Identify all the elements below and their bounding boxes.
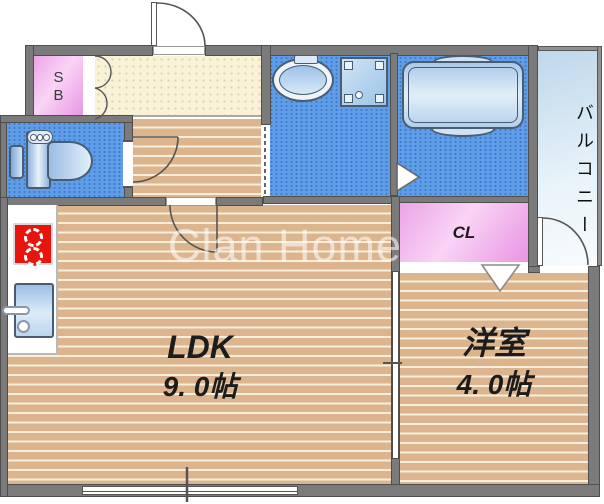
ldk-area: 9. 0帖 [95,367,305,407]
ldk-label: LDK 9. 0帖 [95,327,305,407]
western-room-name: 洋室 [402,322,586,364]
western-room-label: 洋室 4. 0帖 [402,322,586,406]
bathroom-door-icon [397,163,419,191]
floor-plan: SB バルコニー CL LDK 9. 0帖 洋室 4. 0帖 Clan Home [0,0,604,504]
shoe-box-label: SB [34,56,83,117]
closet-folding-door-icon [482,265,519,291]
ldk-name: LDK [95,327,305,367]
western-room-area: 4. 0帖 [402,364,586,406]
toilet-door-arc [133,137,178,182]
entrance-door-arc [157,3,205,46]
balcony-label: バルコニー [538,78,597,268]
watermark: Clan Home [135,220,435,272]
shoe-box-folding-door-icon [95,56,111,119]
